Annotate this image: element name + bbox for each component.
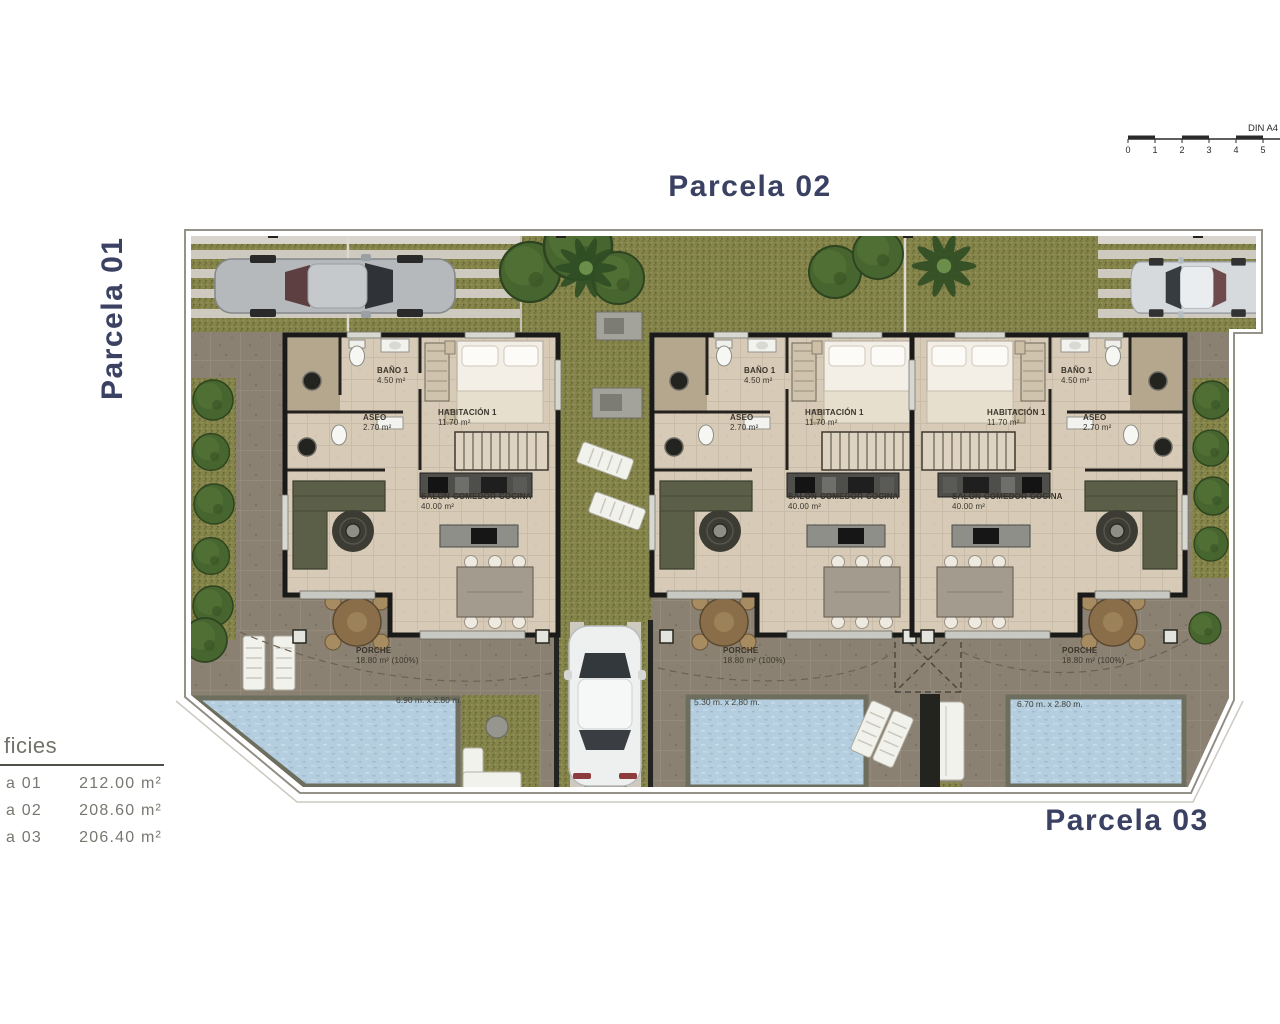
- surface-table-row: a 02 208.60 m²: [0, 793, 164, 820]
- room-label-salon-villa2: SALÓN-COMEDOR-COCINA40.00 m²: [788, 492, 899, 512]
- room-label-habitacion-villa2: HABITACIÓN 111.70 m²: [805, 408, 864, 428]
- site-plan-drawing: DIN A4 0 1 2 3 4 5: [0, 0, 1280, 1024]
- surface-row-label: a 02: [6, 802, 42, 820]
- scale-tick: 1: [1152, 145, 1157, 155]
- pool-2: [688, 697, 866, 787]
- surface-table-heading: ficies: [0, 733, 164, 759]
- scale-bar: DIN A4 0 1 2 3 4 5: [1125, 123, 1280, 155]
- room-label-porche-villa2: PORCHE18.80 m² (100%): [723, 646, 786, 666]
- pool-size-label-3: 6.70 m. x 2.80 m.: [1017, 699, 1083, 709]
- lounger: [273, 636, 295, 690]
- scale-tick: 4: [1233, 145, 1238, 155]
- surface-table-row: a 03 206.40 m²: [0, 820, 164, 847]
- pool-size-label-2: 5.30 m. x 2.80 m.: [694, 697, 760, 707]
- surface-row-label: a 01: [6, 775, 42, 793]
- room-label-bano-villa2: BAÑO 14.50 m²: [744, 366, 775, 386]
- parcel-02-title: Parcela 02: [655, 170, 845, 204]
- room-label-aseo-villa1: ASEO2.70 m²: [363, 413, 392, 433]
- scale-bar-label: DIN A4: [1248, 123, 1278, 134]
- car-central: [564, 626, 646, 786]
- pool-size-label-1: 6.90 m. x 2.80 m.: [396, 695, 462, 705]
- room-label-porche-villa1: PORCHE18.80 m² (100%): [356, 646, 419, 666]
- scale-tick: 0: [1125, 145, 1130, 155]
- surface-table-row: a 01 212.00 m²: [0, 766, 164, 793]
- parcel-divider-wall: [920, 694, 940, 790]
- room-label-habitacion-villa3: HABITACIÓN 111.70 m²: [987, 408, 1046, 428]
- surface-row-area: 212.00 m²: [79, 775, 162, 793]
- surface-row-area: 208.60 m²: [79, 802, 162, 820]
- room-label-aseo-villa2: ASEO2.70 m²: [730, 413, 759, 433]
- scale-tick: 5: [1260, 145, 1265, 155]
- room-label-salon-villa1: SALÓN-COMEDOR-COCINA40.00 m²: [421, 492, 532, 512]
- scale-tick: 3: [1206, 145, 1211, 155]
- room-label-habitacion-villa1: HABITACIÓN 111.70 m²: [438, 408, 497, 428]
- pool-3: [1008, 697, 1184, 786]
- room-label-aseo-villa3: ASEO2.70 m²: [1083, 413, 1112, 433]
- lawn-patch-1: [461, 695, 539, 790]
- scale-tick: 2: [1179, 145, 1184, 155]
- surface-row-area: 206.40 m²: [79, 829, 162, 847]
- parcel-03-title: Parcela 03: [1032, 804, 1222, 838]
- surface-table: ficies a 01 212.00 m² a 02 208.60 m² a 0…: [0, 733, 164, 847]
- room-label-porche-villa3: PORCHE18.80 m² (100%): [1062, 646, 1125, 666]
- parcel-01-title: Parcela 01: [96, 237, 130, 400]
- car-top-left: [215, 254, 455, 318]
- site-plan-page: DIN A4 0 1 2 3 4 5 Parcela 02 Parcela 01…: [0, 0, 1280, 1024]
- room-label-bano-villa3: BAÑO 14.50 m²: [1061, 366, 1092, 386]
- car-top-right: [1131, 257, 1265, 318]
- pool-1: [195, 698, 458, 786]
- lounger: [243, 636, 265, 690]
- surface-row-label: a 03: [6, 829, 42, 847]
- room-label-bano-villa1: BAÑO 14.50 m²: [377, 366, 408, 386]
- room-label-salon-villa3: SALÓN-COMEDOR-COCINA40.00 m²: [952, 492, 1063, 512]
